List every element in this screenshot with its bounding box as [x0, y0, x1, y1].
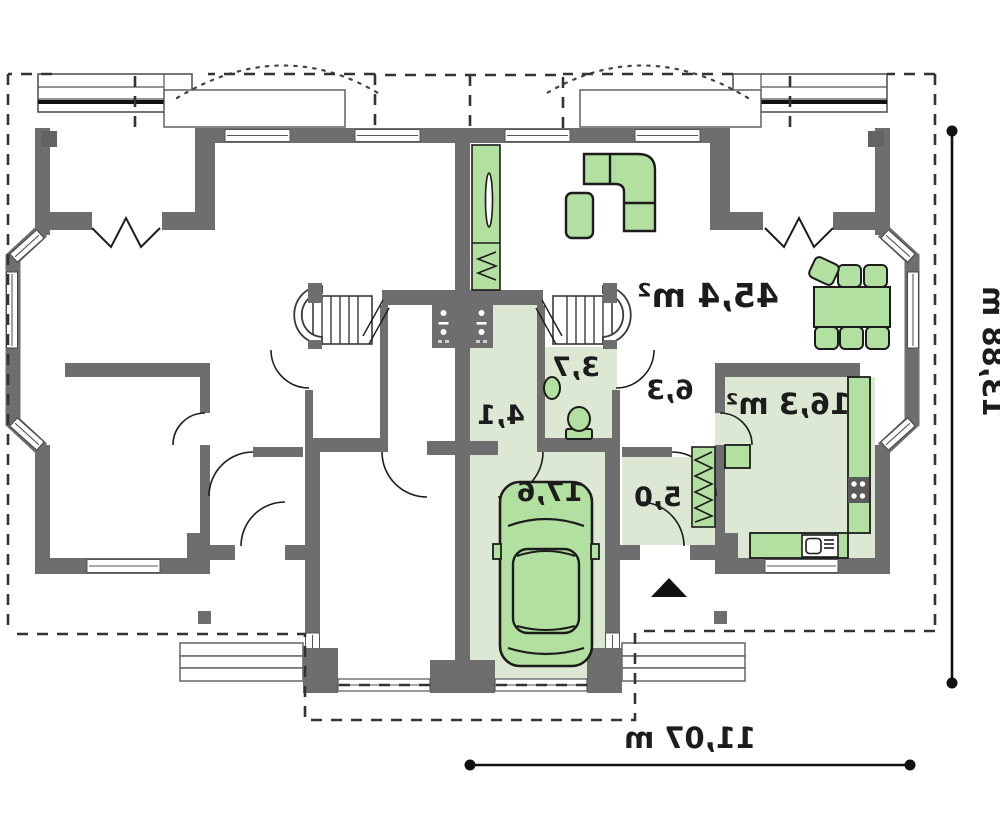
entrance-steps — [622, 643, 745, 681]
window-bottom — [765, 560, 838, 573]
fridge — [725, 445, 750, 468]
kitchen-sink-icon — [802, 535, 838, 557]
window-top-1 — [635, 130, 700, 142]
chair — [815, 327, 838, 349]
mirrored-unit-walls — [7, 65, 473, 693]
living-room-label: 45,4 m² — [637, 276, 779, 315]
dimension-depth: 13,88 m — [947, 126, 1000, 689]
porch-column — [714, 611, 727, 624]
wardrobe-strip — [472, 145, 500, 290]
chair — [838, 265, 861, 287]
dimension-depth-label: 13,88 m — [976, 286, 1000, 418]
column — [868, 131, 884, 147]
corner-sofa — [584, 154, 655, 231]
chair — [840, 327, 863, 349]
chair — [808, 256, 841, 287]
dining-table — [814, 287, 890, 327]
terrace-door-line — [757, 100, 887, 104]
garage-label: 17,6 — [517, 477, 584, 508]
kitchen-label: 16,3 m² — [726, 387, 851, 421]
floor-plan-canvas: 13,88 m 11,07 m 45,4 m² 16,3 m² 3,7 6,3 … — [0, 0, 1000, 822]
mirror-wrapper: 13,88 m 11,07 m 45,4 m² 16,3 m² 3,7 6,3 … — [7, 65, 1000, 770]
dimension-width: 11,07 m — [465, 721, 916, 771]
entrance-arrow-icon — [651, 578, 687, 597]
dining-set — [808, 256, 890, 349]
corridor-wardrobe — [692, 447, 715, 527]
cooktop-icon — [848, 477, 869, 503]
toilet-icon — [566, 407, 592, 439]
bathroom-label: 3,7 — [552, 352, 600, 383]
utility-label: 4,1 — [477, 400, 525, 431]
chair — [864, 265, 887, 287]
party-wall — [455, 128, 470, 693]
stairs — [536, 283, 631, 349]
corner-window — [710, 141, 890, 247]
hall-label: 6,3 — [646, 375, 694, 406]
corridor-label: 5,0 — [634, 482, 682, 513]
armchair — [566, 193, 593, 238]
upper-floor-outline — [375, 75, 563, 128]
window-top-2 — [505, 130, 570, 142]
car-icon — [493, 482, 599, 666]
dimension-width-label: 11,07 m — [624, 721, 756, 755]
canopy — [580, 90, 761, 127]
chimney — [470, 300, 493, 348]
chair — [866, 327, 889, 349]
floor-plan-page: 13,88 m 11,07 m 45,4 m² 16,3 m² 3,7 6,3 … — [0, 0, 1000, 822]
